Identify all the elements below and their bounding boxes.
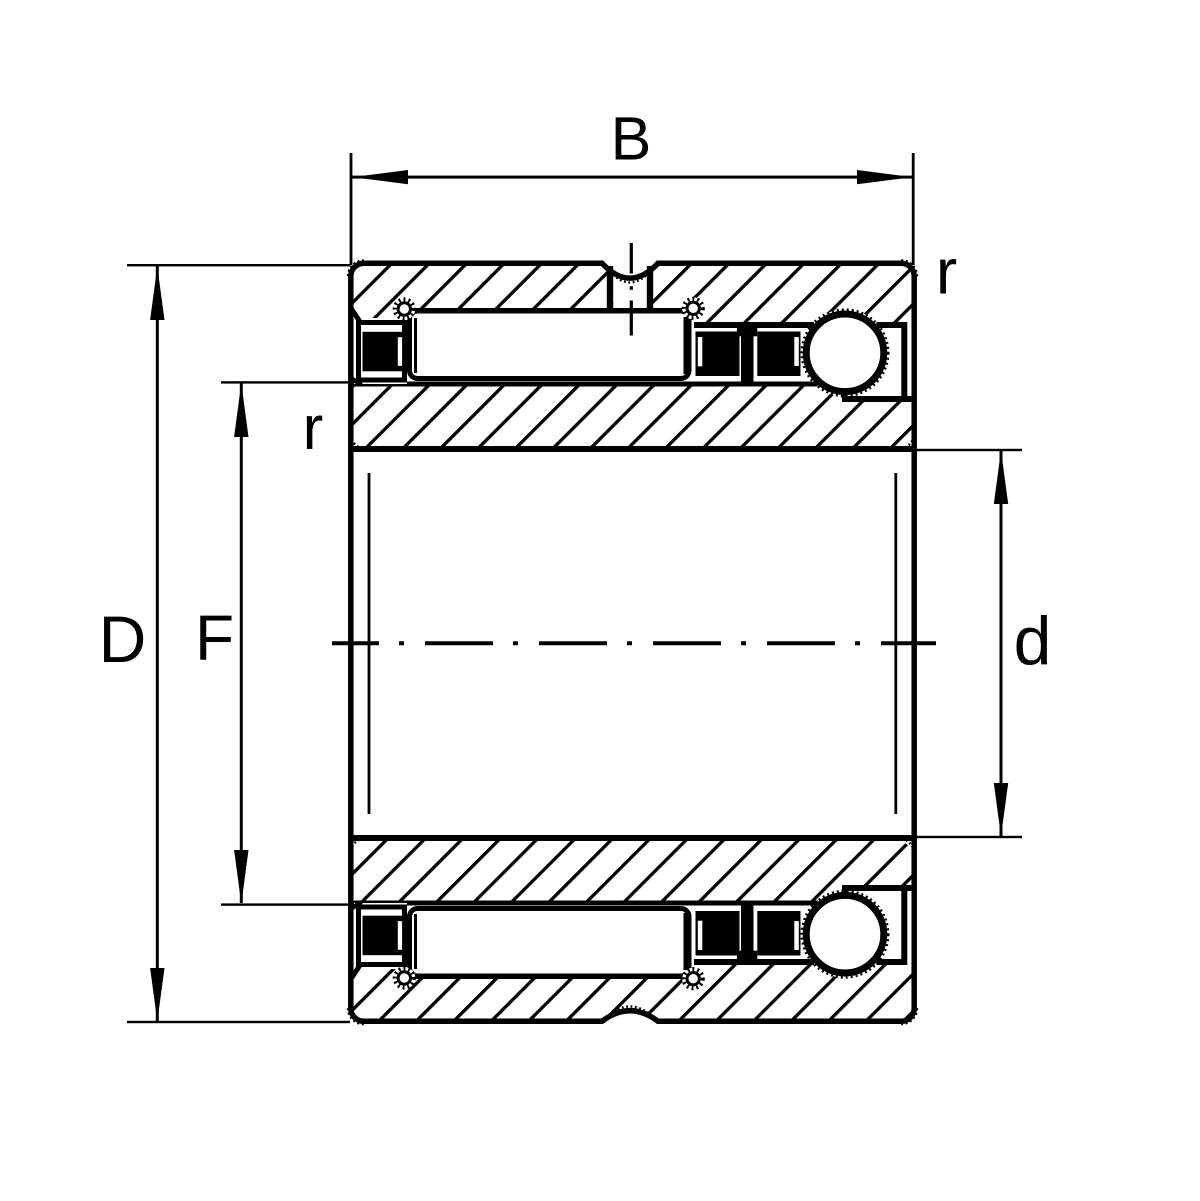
svg-text:d: d (1014, 603, 1052, 679)
svg-text:B: B (611, 104, 652, 172)
svg-text:r: r (303, 394, 324, 463)
svg-text:r: r (936, 236, 957, 308)
svg-text:F: F (195, 602, 234, 674)
svg-text:D: D (99, 602, 147, 676)
